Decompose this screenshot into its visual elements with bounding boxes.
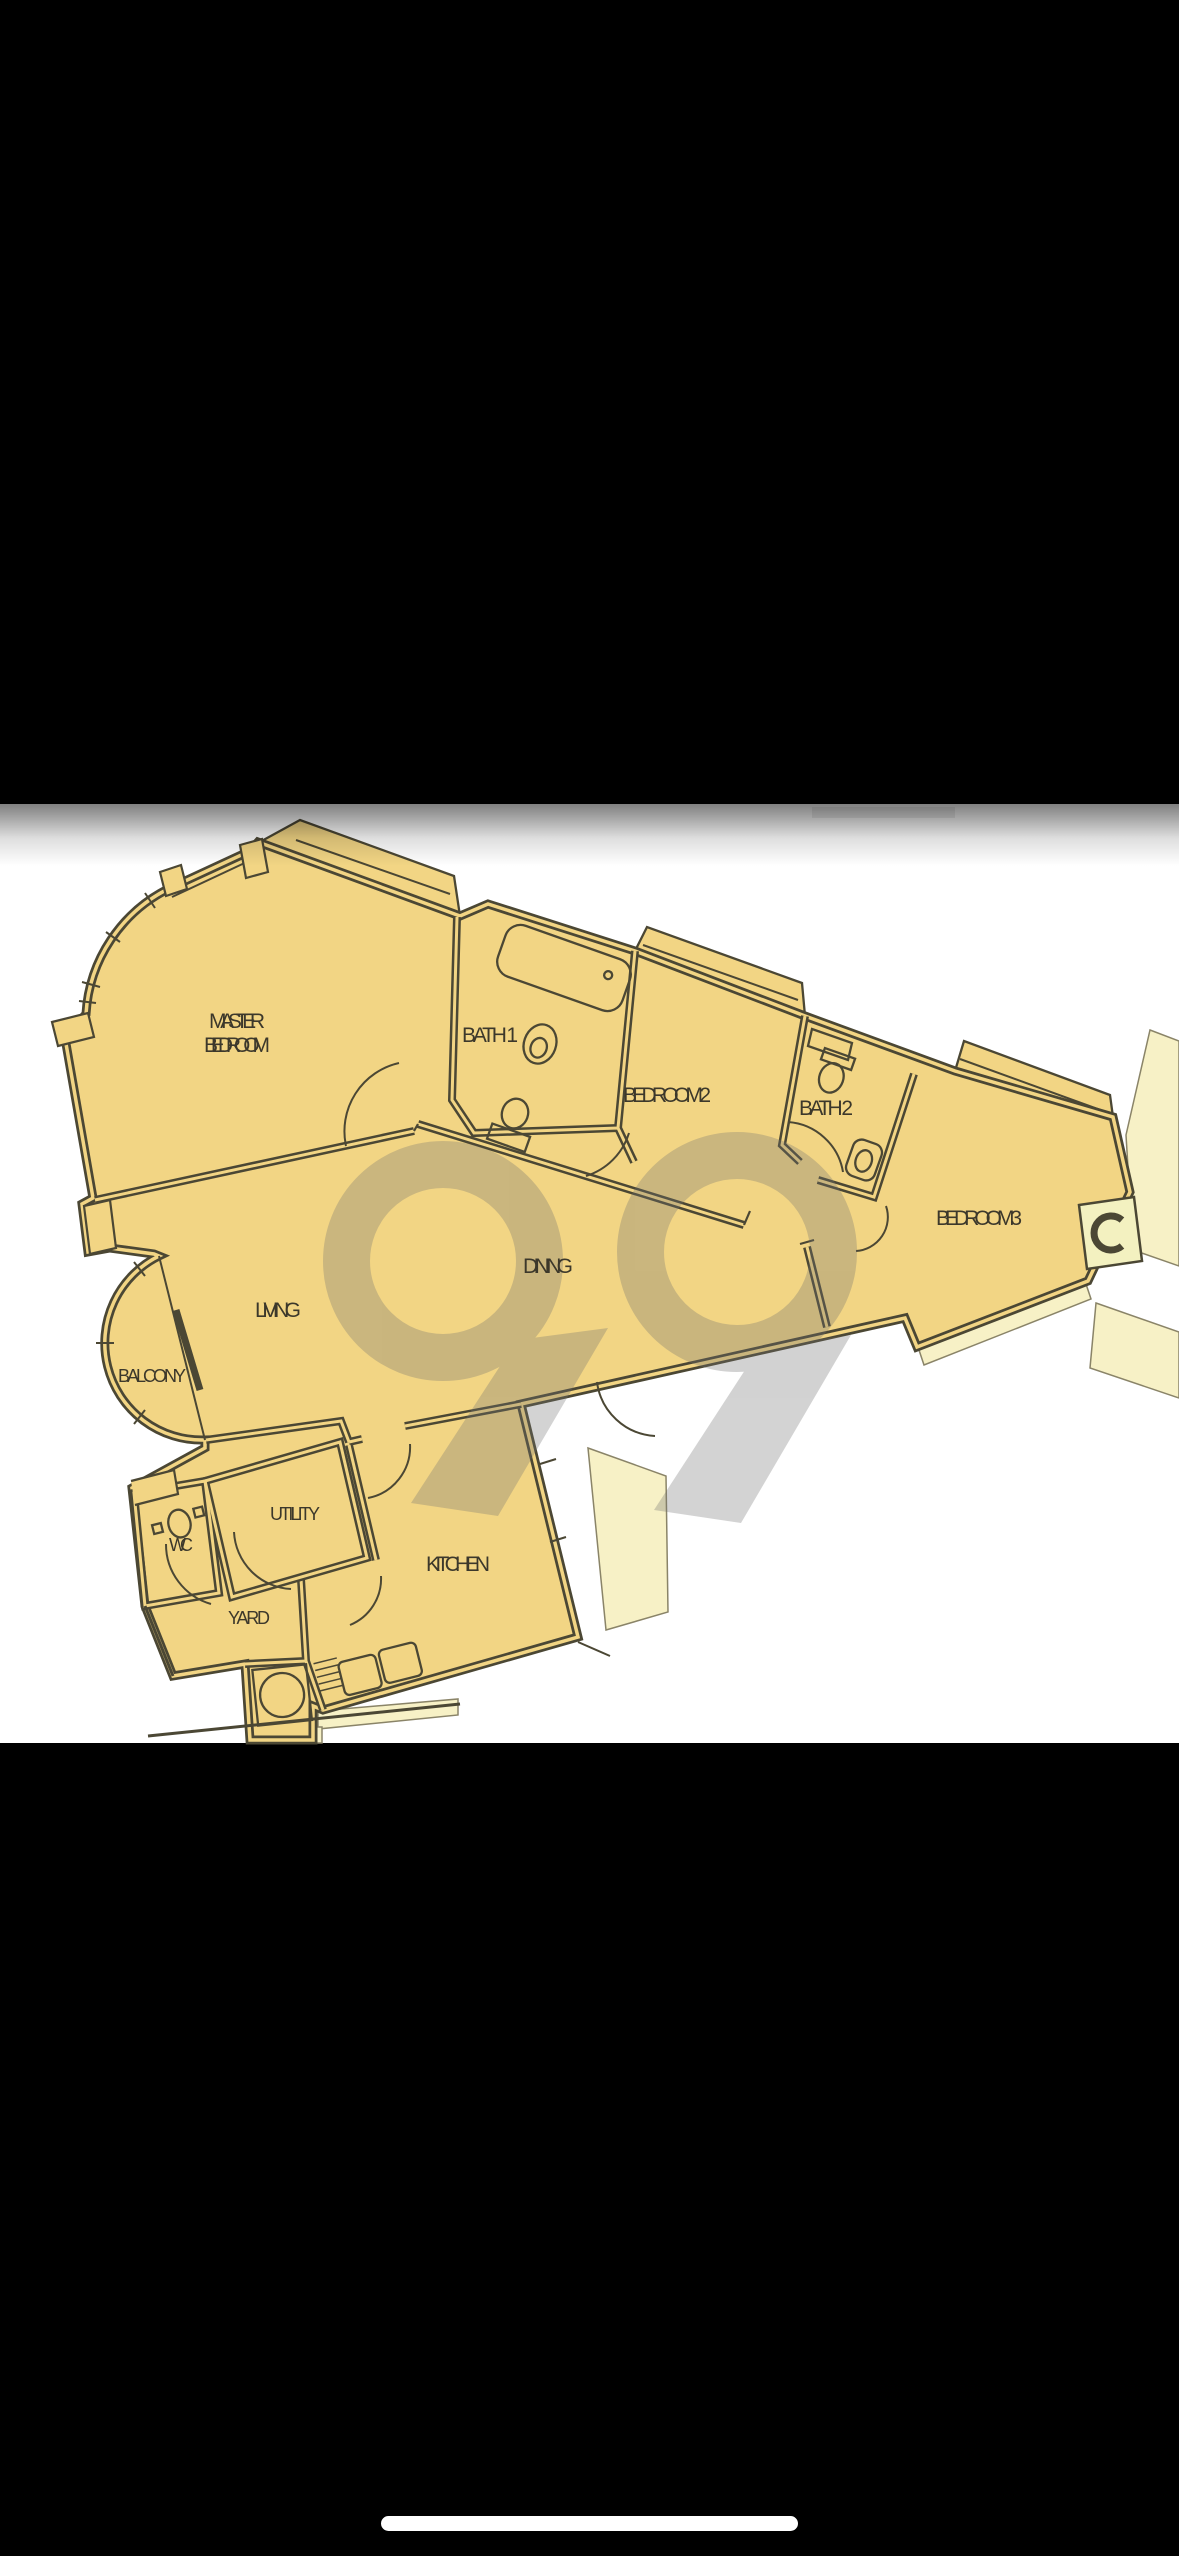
svg-text:BEDROOM 2: BEDROOM 2 <box>623 1084 711 1107</box>
svg-text:KITCHEN: KITCHEN <box>426 1553 490 1576</box>
svg-text:MASTER: MASTER <box>209 1010 265 1033</box>
svg-text:BATH 2: BATH 2 <box>799 1097 853 1120</box>
svg-text:BEDROOM 3: BEDROOM 3 <box>936 1207 1022 1230</box>
svg-text:UTILITY: UTILITY <box>270 1504 320 1524</box>
svg-text:YARD: YARD <box>228 1608 270 1628</box>
svg-text:LIVING: LIVING <box>255 1299 301 1322</box>
svg-text:WC: WC <box>169 1535 193 1555</box>
svg-text:BATH 1: BATH 1 <box>462 1024 518 1047</box>
svg-text:BEDROOM: BEDROOM <box>204 1034 270 1057</box>
svg-text:BALCONY: BALCONY <box>118 1366 186 1386</box>
svg-text:DINING: DINING <box>523 1255 573 1278</box>
